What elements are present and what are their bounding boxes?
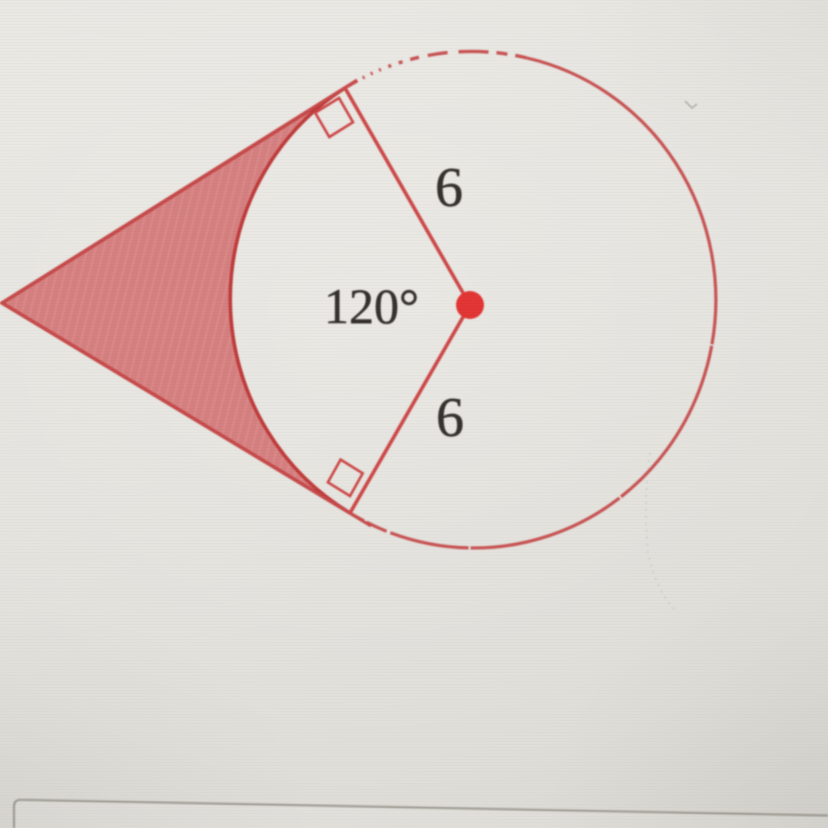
svg-text:6: 6 [435, 157, 463, 219]
svg-text:120°: 120° [324, 278, 419, 334]
svg-text:6: 6 [436, 387, 464, 449]
